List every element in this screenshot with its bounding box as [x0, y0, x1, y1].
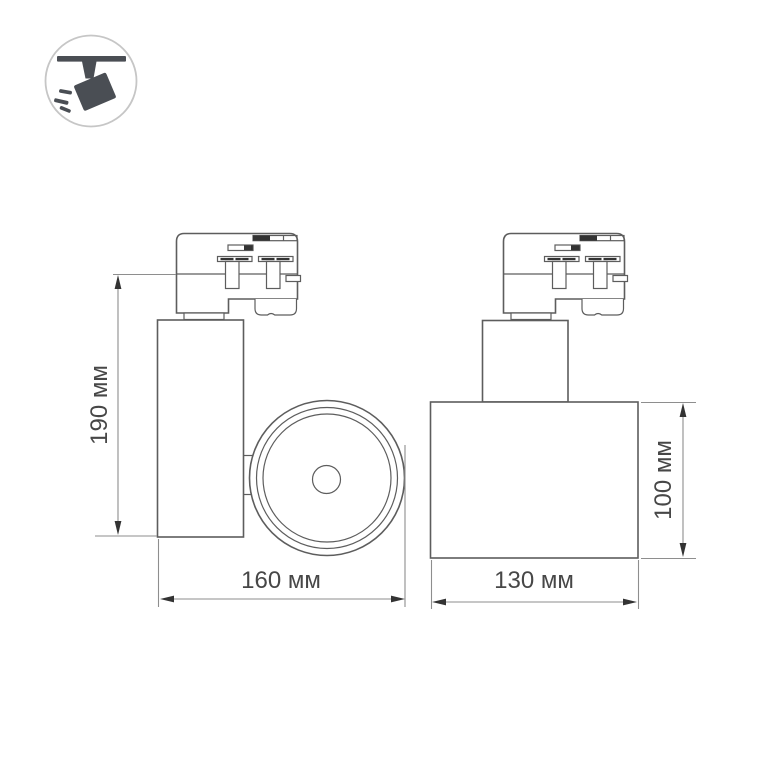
dimension-label-side-width: 130 мм	[494, 569, 574, 593]
mount-type-icon	[46, 36, 137, 127]
dimension-label-front-width: 160 мм	[241, 569, 321, 593]
arrowhead-left	[160, 596, 174, 603]
technical-drawing	[0, 0, 767, 767]
arrowhead-down	[680, 543, 687, 557]
arrowhead-down	[115, 521, 122, 535]
track-adapter-side	[504, 234, 628, 320]
track-adapter-front	[177, 234, 301, 320]
arrowhead-left	[432, 599, 446, 606]
lamp-stem-side	[483, 321, 569, 403]
dimension-label-front-height: 190 мм	[88, 365, 112, 445]
dimension-drawing-page: 190 мм 160 мм 130 мм 100 мм	[0, 0, 767, 767]
arrowhead-up	[680, 403, 687, 417]
arrowhead-right	[623, 599, 637, 606]
lamp-body-front	[158, 320, 244, 537]
lamp-body-side	[431, 402, 639, 558]
side-view	[431, 234, 639, 559]
arrowhead-up	[115, 275, 122, 289]
front-view	[158, 234, 405, 556]
arrowhead-right	[391, 596, 405, 603]
lens-face	[250, 401, 405, 556]
dimension-label-side-height: 100 мм	[652, 440, 676, 520]
